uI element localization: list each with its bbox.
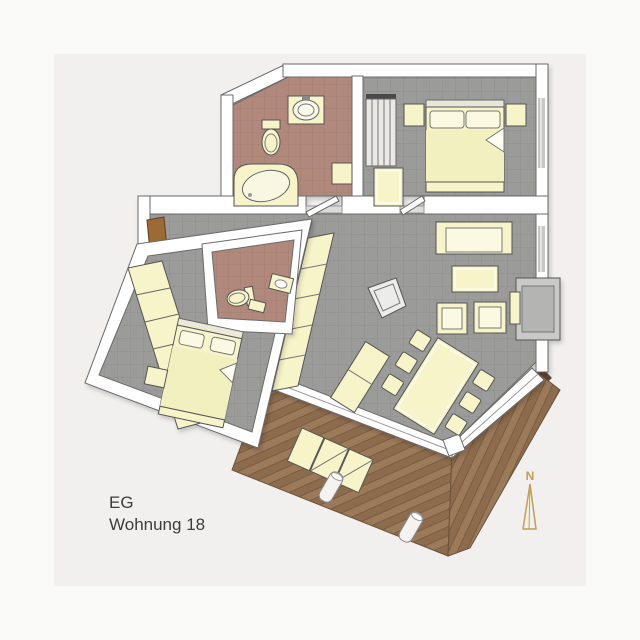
suite-nightstand [144,366,167,388]
bed-pillow-left [430,111,464,128]
toilet-tank [262,120,280,129]
apartment-label: Wohnung 18 [109,515,205,534]
armchair-right-seat [479,307,501,328]
bed-footboard [426,182,504,192]
coffee-table [452,266,498,292]
hall-cabinet [374,168,403,206]
wall-mid-right [424,196,548,214]
floor-plan-page: N EG Wohnung 18 [0,0,640,640]
sink-basin [293,100,319,120]
bathroom-cabinet [332,163,352,184]
floor-label: EG [109,493,134,512]
stair-top-edge [366,94,396,99]
stair-treads [366,99,396,166]
bathtub-drain [248,193,252,197]
compass-north-label: N [526,469,535,483]
wall-bathroom-left [221,95,233,208]
armchair-left-seat [442,308,462,329]
floor-plan-drawing: N EG Wohnung 18 [0,0,640,640]
wall-bathroom-divider [352,76,363,196]
bed-pillow-right [466,111,500,128]
bed-headboard [426,100,504,107]
nightstand-body [144,366,167,388]
sofa-seat [446,228,502,252]
wall-top [283,64,548,77]
staircase [366,94,396,166]
sink-tap [302,96,310,100]
nightstand-left [404,104,424,126]
stove-panel [510,292,520,324]
chimney-bay-inner [522,286,554,332]
nightstand-right [506,104,526,126]
